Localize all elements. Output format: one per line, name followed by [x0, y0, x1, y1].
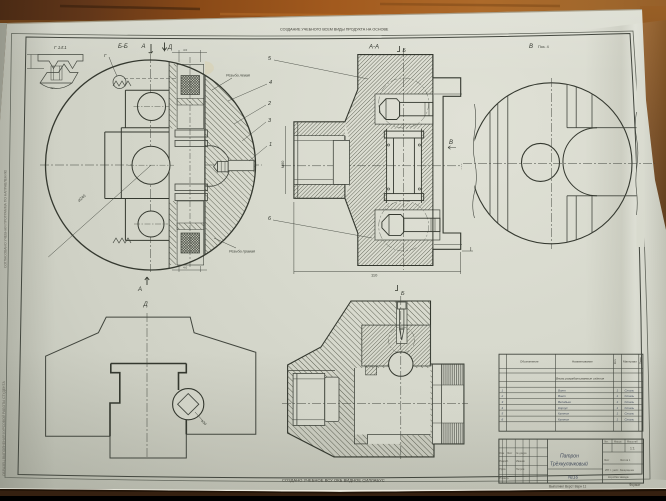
svg-text:Сталь: Сталь [625, 417, 635, 421]
svg-text:Вновь разрабатываемые изделия: Вновь разрабатываемые изделия [556, 377, 605, 381]
svg-text:В: В [529, 44, 533, 50]
svg-text:Д: Д [143, 302, 149, 308]
svg-text:Масса: Масса [614, 441, 622, 444]
svg-text:Иванов: Иванов [516, 460, 525, 463]
svg-text:Коробка завода: Коробка завода [608, 475, 629, 479]
svg-text:Петров: Петров [516, 468, 525, 471]
svg-text:2: 2 [501, 394, 504, 398]
svg-text:4: 4 [269, 80, 272, 86]
svg-text:Винт: Винт [558, 389, 566, 393]
svg-text:№ докум.: № докум. [516, 452, 527, 455]
svg-text:Пров.: Пров. [500, 468, 507, 471]
svg-text:СОГЛАСОВАНО УЧЕБНАЯ ПРОГРАММА: СОГЛАСОВАНО УЧЕБНАЯ ПРОГРАММА ПО НАПРАВЛ… [4, 169, 8, 268]
svg-text:Резьба правая: Резьба правая [229, 250, 255, 254]
svg-text:СОЗДАНИЕ УЧЕБНОГО ВСЕМ ВИДЫ ПР: СОЗДАНИЕ УЧЕБНОГО ВСЕМ ВИДЫ ПРОДУКТА НА … [280, 28, 389, 32]
svg-text:Г 14:1: Г 14:1 [54, 45, 67, 50]
svg-text:1:1: 1:1 [630, 447, 635, 451]
svg-text:Лит.: Лит. [604, 441, 609, 444]
svg-text:Сталь: Сталь [625, 406, 635, 410]
svg-text:А: А [137, 287, 142, 293]
svg-text:Сталь: Сталь [625, 411, 635, 415]
svg-text:ОБРАЗЕЦ ВЫПОЛНЕНИЯ КУРСОВОЙ РА: ОБРАЗЕЦ ВЫПОЛНЕНИЯ КУРСОВОЙ РАБОТЫ СТУДЕ… [2, 381, 6, 476]
svg-text:Корпус: Корпус [558, 406, 568, 410]
svg-text:Кол.: Кол. [613, 359, 617, 364]
svg-text:Б-Б: Б-Б [118, 44, 128, 50]
svg-text:Наименование: Наименование [572, 360, 593, 364]
svg-text:Трёхкулачковый: Трёхкулачковый [550, 461, 588, 468]
svg-text:А-А: А-А [368, 45, 379, 51]
svg-text:А: А [141, 44, 146, 50]
svg-text:Сталь: Сталь [625, 389, 635, 393]
svg-text:Листов 1: Листов 1 [620, 459, 631, 462]
svg-text:Лист: Лист [604, 459, 610, 462]
svg-text:Разраб.: Разраб. [500, 460, 509, 463]
svg-text:СОЗДАНО УЧЕБНОЕ ВСУ ОКБ ВИДНОЕ: СОЗДАНО УЧЕБНОЕ ВСУ ОКБ ВИДНОЕ СИЛЛАБУС [282, 478, 385, 483]
svg-text:Масштаб: Масштаб [627, 441, 638, 444]
svg-text:Патрон: Патрон [560, 454, 579, 460]
svg-text:Лист: Лист [507, 452, 513, 455]
svg-text:Материал: Материал [623, 360, 637, 364]
svg-text:4:0: 4:0 [183, 266, 188, 270]
svg-text:Прим.: Прим. [639, 356, 643, 364]
svg-text:110: 110 [371, 273, 378, 278]
svg-text:Б: Б [401, 291, 405, 297]
svg-text:2: 2 [267, 101, 271, 107]
svg-text:Кулачок: Кулачок [558, 411, 570, 415]
svg-text:В: В [449, 140, 453, 146]
svg-text:№16: №16 [568, 475, 579, 480]
svg-text:Изм: Изм [500, 452, 505, 455]
svg-text:Обозначение: Обозначение [520, 360, 539, 364]
svg-text:Резьба левая: Резьба левая [226, 74, 250, 78]
svg-text:1: 1 [269, 142, 272, 148]
svg-text:Винт: Винт [558, 394, 566, 398]
svg-text:М60: М60 [281, 161, 285, 168]
svg-text:4:0: 4:0 [183, 48, 188, 52]
svg-text:Выполнил Верст Верн 11: Выполнил Верст Верн 11 [549, 485, 586, 489]
svg-text:Н.контр.: Н.контр. [500, 477, 510, 480]
svg-text:Вкладыш: Вкладыш [558, 400, 572, 404]
svg-text:Кулачок: Кулачок [558, 417, 570, 421]
svg-text:Поз. 4: Поз. 4 [538, 45, 549, 49]
svg-text:Сталь: Сталь [625, 400, 635, 404]
svg-text:ИП т. умлт. Защищена: ИП т. умлт. Защищена [605, 468, 634, 472]
svg-text:Д: Д [167, 45, 173, 51]
svg-text:Сталь: Сталь [625, 394, 635, 398]
svg-text:40°: 40° [50, 86, 55, 90]
